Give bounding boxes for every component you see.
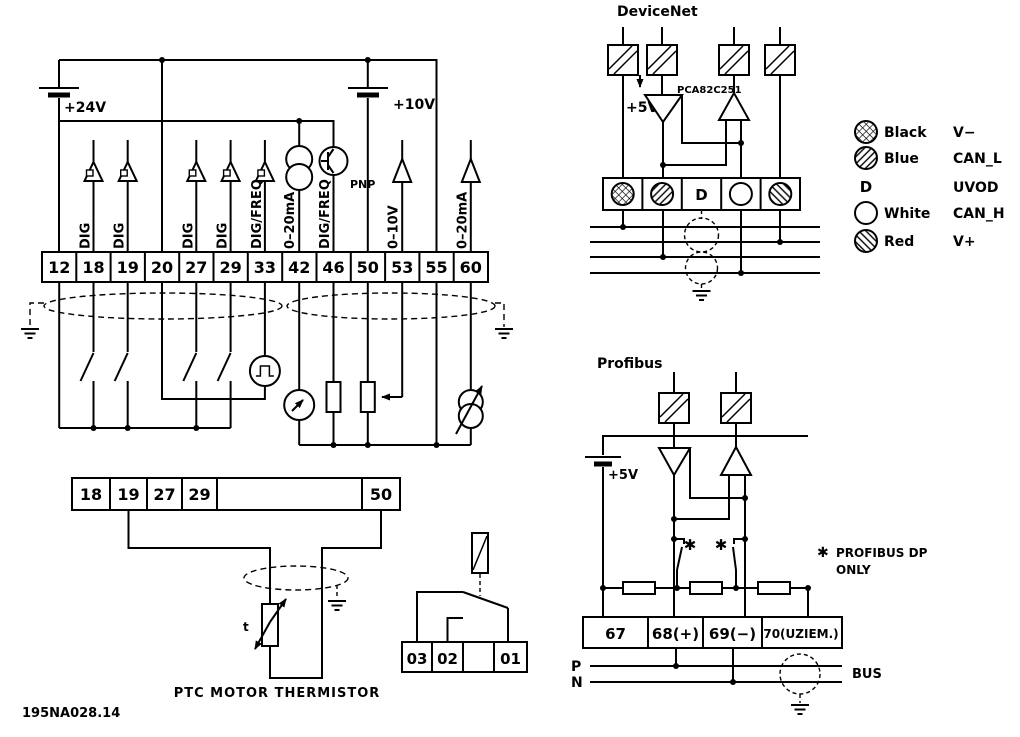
relay-coil-icon: [472, 533, 488, 596]
blue-wire-icon: [651, 183, 673, 205]
profibus-bus-lines: P N BUS: [571, 648, 882, 691]
ground-icon: [495, 329, 513, 338]
opto-arrow-icon: [119, 162, 137, 181]
thermistor-diagram: 18 19 27 29 50 t PTC MOTOR THERMISTOR: [72, 478, 400, 701]
terminal-20: 20: [151, 258, 173, 277]
opto-arrow-icon: [187, 162, 205, 181]
terminal-27: 27: [153, 485, 175, 504]
terminal-01: 01: [500, 650, 521, 668]
terminal-70: 70(UZIEM.): [763, 627, 838, 641]
pulse-generator-symbol: [162, 282, 280, 399]
digital-input-switches: [59, 282, 230, 431]
terminal-55: 55: [425, 258, 447, 277]
supply-24v-label: +24V: [64, 100, 106, 116]
legend-signal-canl: CAN_L: [953, 151, 1002, 167]
terminal-46: 46: [322, 258, 344, 277]
terminal-02: 02: [437, 650, 458, 668]
terminal-53: 53: [391, 258, 413, 277]
label-t29: DIG: [216, 223, 231, 249]
control-card-diagram: +24V +10V: [21, 57, 513, 448]
bus-p-label: P: [571, 659, 581, 675]
relay-nc-wire: [448, 618, 464, 642]
terminal-19: 19: [117, 258, 139, 277]
thermistor-wire-left: [129, 510, 271, 604]
control-terminal-strip: 12 18 19 20 27 29 33 42 46 50 53 55 60: [42, 252, 488, 282]
rs485-driver-icon: [659, 448, 690, 475]
terminal-18: 18: [80, 485, 102, 504]
profibus-diagram: Profibus +5V: [571, 356, 928, 714]
potentiometer-icon: [361, 382, 375, 412]
devicenet-shield-ground: [685, 210, 719, 300]
asterisk-icon: ✱: [817, 545, 829, 561]
termination-switches: ✱ ✱: [671, 536, 748, 588]
wiring-diagram-svg: +24V +10V: [0, 0, 1020, 737]
optocoupler-icon: [659, 393, 689, 423]
terminal-50: 50: [370, 485, 392, 504]
temperature-label: t: [243, 620, 249, 634]
legend-d: D: [860, 178, 872, 196]
profibus-optocouplers: [659, 372, 751, 423]
optocoupler-icon: [721, 393, 751, 423]
label-t19: DIG: [113, 223, 128, 249]
arrow-up-icon: [393, 159, 411, 182]
terminal-03: 03: [407, 650, 428, 668]
relay-switch-blade: [463, 592, 508, 608]
black-wire-icon: [855, 121, 877, 143]
profibus-shield-ground: [780, 654, 820, 714]
devicenet-optocouplers: [608, 27, 795, 75]
arrow-up-icon: [462, 159, 480, 182]
thermistor-wire-right: [270, 510, 381, 678]
terminal-60: 60: [460, 258, 482, 277]
legend-signal-vminus: V−: [953, 125, 976, 141]
terminal-12: 12: [48, 258, 70, 277]
label-t53: 0–10V: [387, 205, 402, 249]
terminal-33: 33: [254, 258, 276, 277]
white-wire-icon: [855, 202, 877, 224]
legend-signal-canh: CAN_H: [953, 206, 1005, 222]
devicenet-bus-lines: [590, 210, 820, 276]
terminal-68: 68(+): [652, 625, 699, 643]
label-t42: 0–20mA: [283, 192, 298, 249]
ground-icon: [21, 329, 39, 338]
devicenet-terminal-strip: D: [603, 178, 800, 210]
label-t46: DIG/FREQ: [318, 179, 333, 249]
variable-current-source-icon: [456, 386, 483, 434]
profibus-title: Profibus: [597, 356, 662, 372]
legend-color-black: Black: [884, 125, 927, 141]
termination-resistors: [600, 582, 811, 617]
profibus-terminal-strip: 67 68(+) 69(−) 70(UZIEM.): [583, 617, 842, 648]
devicenet-diagram: DeviceNet +5V PCA82C251: [590, 4, 1005, 300]
profibus-supply-rail: [603, 436, 808, 455]
red-wire-icon: [769, 183, 791, 205]
resistor-icon: [327, 382, 341, 412]
blue-wire-icon: [855, 147, 877, 169]
battery-24v: +24V: [39, 60, 106, 252]
ground-icon: [328, 601, 346, 610]
devicenet-legend: D Black Blue White Red V− CAN_L UVOD CAN…: [855, 121, 1005, 252]
terminal-50: 50: [357, 258, 379, 277]
label-t27: DIG: [181, 223, 196, 249]
legend-color-blue: Blue: [884, 151, 919, 167]
terminal-27: 27: [185, 258, 207, 277]
optocoupler-icon: [647, 45, 677, 75]
ground-icon: [693, 291, 711, 300]
supply-10v-label: +10V: [393, 97, 435, 113]
white-wire-icon: [730, 183, 752, 205]
bus-label: BUS: [852, 667, 882, 682]
terminal-d: D: [695, 186, 707, 204]
signal-labels: DIG DIG DIG DIG DIG/FREQ 0–20mA DIG/FREQ…: [79, 179, 471, 249]
red-wire-icon: [855, 230, 877, 252]
legend-color-white: White: [884, 206, 930, 222]
note-line2: ONLY: [836, 563, 871, 577]
relay-diagram: 03 02 01: [402, 533, 527, 672]
resistor-icon: [758, 582, 790, 594]
opto-arrow-icon: [222, 162, 240, 181]
thermistor-shield: [244, 566, 348, 610]
optocoupler-icon: [765, 45, 795, 75]
cable-shield: [21, 293, 513, 338]
label-t60: 0–20mA: [455, 192, 470, 249]
optocoupler-icon: [608, 45, 638, 75]
thermistor-caption: PTC MOTOR THERMISTOR: [174, 686, 381, 701]
resistor-icon: [623, 582, 655, 594]
ptc-thermistor-symbol: t: [243, 599, 286, 649]
black-wire-icon: [612, 183, 634, 205]
label-t33: DIG/FREQ: [250, 179, 265, 249]
transceiver-label: PCA82C251: [677, 85, 742, 96]
label-t18: DIG: [79, 223, 94, 249]
pnp-label: PNP: [350, 178, 375, 191]
wiring-diagram-page: +24V +10V: [0, 0, 1020, 737]
asterisk-icon: ✱: [684, 536, 697, 554]
terminal-42: 42: [288, 258, 310, 277]
analog-lower-wiring: [284, 282, 483, 448]
terminal-19: 19: [117, 485, 139, 504]
resistor-icon: [690, 582, 722, 594]
terminal-18: 18: [82, 258, 104, 277]
figure-id: 195NA028.14: [22, 706, 120, 721]
thermistor-terminal-strip: 18 19 27 29 50: [72, 478, 400, 510]
opto-arrow-icon: [85, 162, 103, 181]
note-line1: PROFIBUS DP: [836, 546, 928, 560]
ground-icon: [791, 705, 809, 714]
legend-signal-vplus: V+: [953, 234, 976, 250]
legend-color-red: Red: [884, 234, 914, 250]
legend-signal-uvod: UVOD: [953, 180, 998, 196]
terminal-29: 29: [188, 485, 210, 504]
terminal-29: 29: [219, 258, 241, 277]
opto-arrow-icon: [256, 162, 274, 181]
terminal-69: 69(−): [709, 625, 756, 643]
devicenet-title: DeviceNet: [617, 4, 698, 20]
asterisk-icon: ✱: [715, 536, 728, 554]
can-receiver-icon: [719, 93, 749, 120]
profibus-supply-label: +5V: [608, 468, 638, 483]
terminal-67: 67: [605, 625, 626, 643]
bus-n-label: N: [571, 675, 583, 691]
relay-terminal-strip: 03 02 01: [402, 642, 527, 672]
optocoupler-icon: [719, 45, 749, 75]
rs485-receiver-icon: [721, 447, 751, 475]
profibus-note: ✱ PROFIBUS DP ONLY: [817, 545, 928, 577]
